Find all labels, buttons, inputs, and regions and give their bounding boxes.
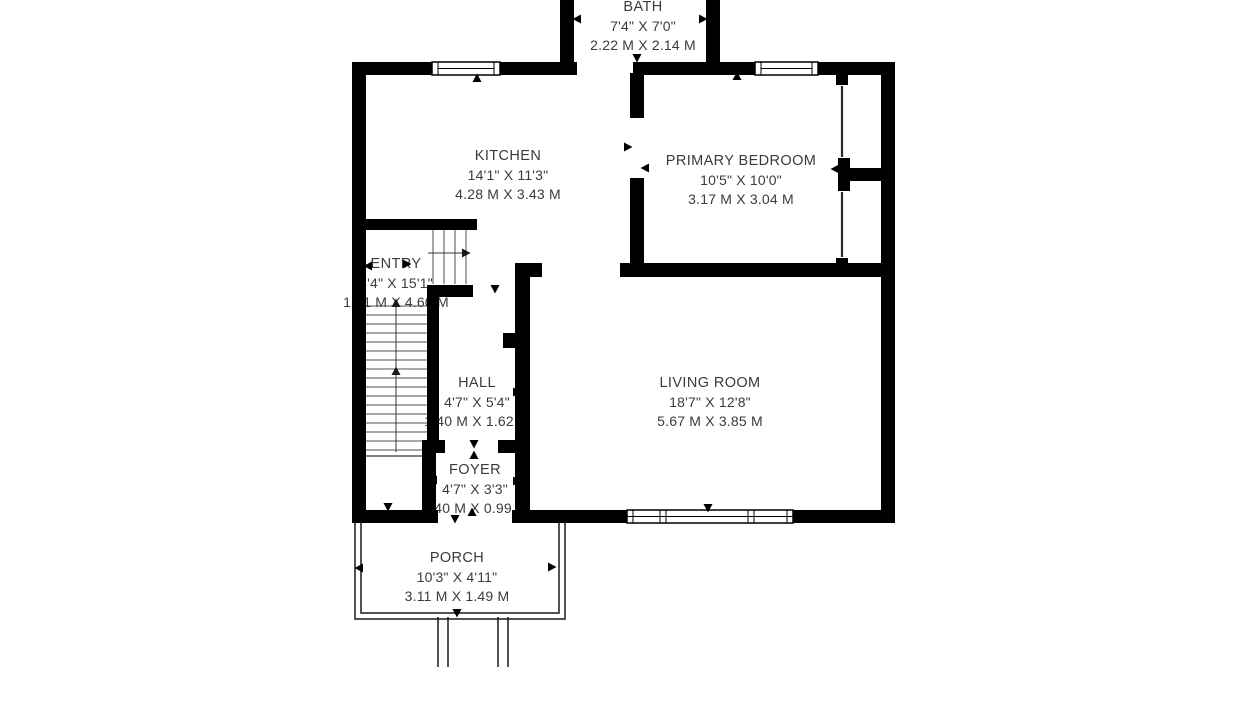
porch-wall-inner xyxy=(361,523,559,613)
wall xyxy=(881,62,895,522)
marker-arrow xyxy=(633,54,642,63)
wall xyxy=(630,73,644,118)
wall xyxy=(836,75,848,85)
wall xyxy=(838,158,850,191)
porch-step-post xyxy=(438,617,448,667)
windows xyxy=(432,62,818,523)
stair-up-arrow xyxy=(392,367,401,376)
wall xyxy=(427,285,473,297)
floor-plan: BATH 7'4" X 7'0" 2.22 M X 2.14 M KITCHEN… xyxy=(0,0,1240,720)
wall xyxy=(427,297,439,453)
marker-arrow xyxy=(548,563,557,572)
wall xyxy=(352,219,477,230)
marker-arrow xyxy=(470,451,479,460)
stair-right-arrow xyxy=(462,249,471,258)
window xyxy=(627,510,793,523)
porch-outline xyxy=(355,523,565,667)
marker-arrow xyxy=(468,508,477,517)
window xyxy=(755,62,818,75)
window xyxy=(432,62,500,75)
porch-step-post xyxy=(498,617,508,667)
wall xyxy=(836,258,848,268)
marker-arrow xyxy=(624,143,633,152)
porch-wall-outer xyxy=(355,523,565,619)
wall xyxy=(560,0,574,63)
marker-arrow xyxy=(470,440,479,449)
wall xyxy=(706,0,720,63)
marker-arrow xyxy=(491,285,500,294)
wall xyxy=(352,62,366,523)
wall xyxy=(498,440,530,453)
walls xyxy=(352,0,895,523)
marker-arrow xyxy=(831,165,840,174)
marker-arrow xyxy=(641,164,650,173)
wall xyxy=(503,333,516,348)
wall xyxy=(620,263,895,277)
stair-up-arrow xyxy=(392,299,401,308)
walls-layer xyxy=(0,0,1240,720)
marker-arrow xyxy=(451,515,460,524)
marker-arrow xyxy=(403,260,412,269)
wall xyxy=(630,178,644,277)
marker-arrow xyxy=(355,564,364,573)
